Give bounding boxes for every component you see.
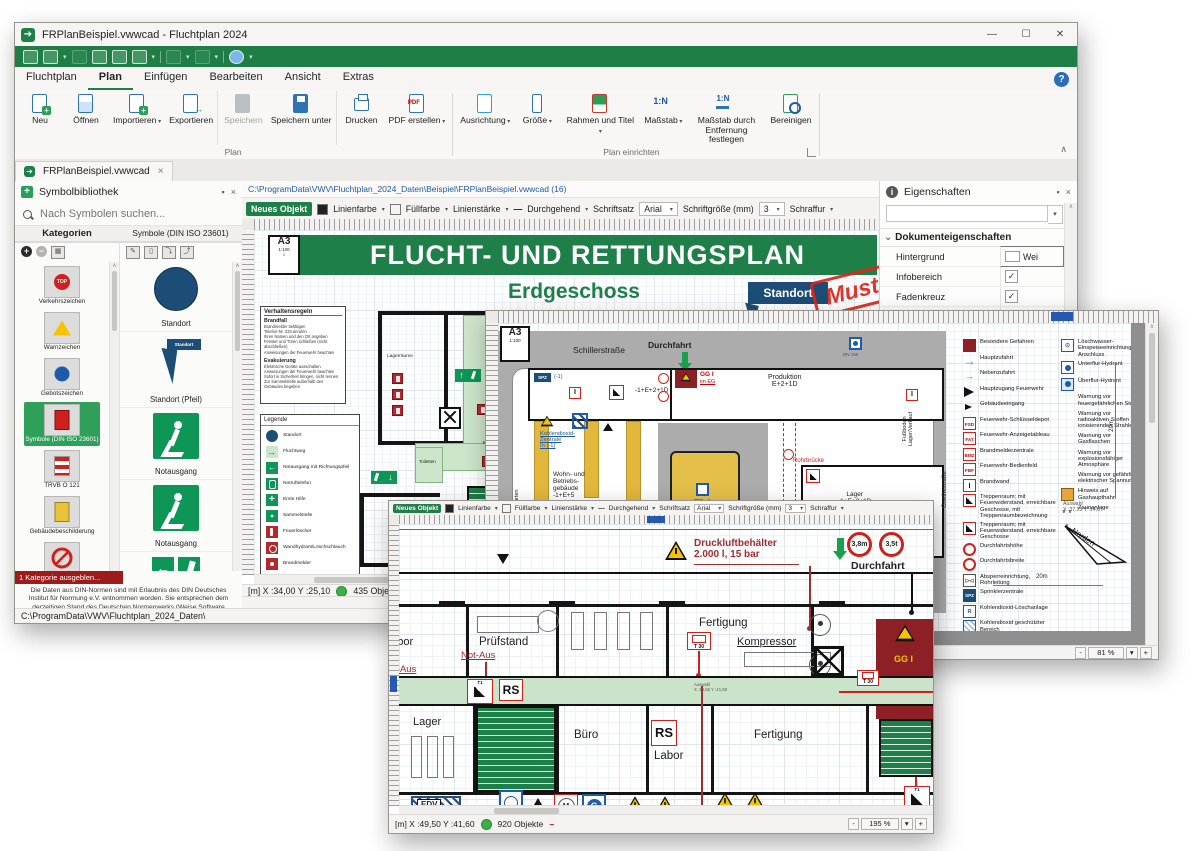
- symbol-label: Notausgang: [120, 539, 232, 548]
- symbol-toolbar: ✎ ▯ ⤵ ⤴: [120, 243, 242, 262]
- zoom-dropdown-icon[interactable]: ▾: [901, 818, 913, 830]
- entry-arrow: [837, 538, 844, 551]
- zoom-dropdown-icon[interactable]: ▾: [1126, 647, 1138, 659]
- document-tab[interactable]: ➔ FRPlanBeispiel.vwwcad ×: [15, 161, 173, 181]
- symbol-library-panel: + Symbolbibliothek ▪ × Kategorien Symbol…: [15, 181, 243, 609]
- ribbon-group-setup: Ausrichtung Größe Rahmen und Titel: [454, 90, 817, 159]
- status-ok-icon: [336, 586, 347, 597]
- fire-legend-icon: [1061, 472, 1074, 485]
- category-label: TRVB O 121: [24, 483, 100, 490]
- fire-legend-label: Hauptzufahrt: [980, 355, 1013, 361]
- ribbon-button[interactable]: Maßstab: [640, 91, 686, 145]
- symbol-search[interactable]: [15, 203, 242, 226]
- ribbon-button[interactable]: Speichern unter: [267, 91, 337, 145]
- object-count: 920 Objekte: [498, 819, 544, 829]
- fire-legend-item: BMZ Brandmelderzentrale: [963, 448, 1059, 461]
- symbol-item[interactable]: Standort (Pfeil): [120, 332, 232, 408]
- detail-canvas[interactable]: Druckluftbehälter 2.000 l, 15 bar 3,8m 3…: [399, 524, 933, 806]
- ribbon-button-label: Drucken: [346, 116, 378, 126]
- ribbon-button[interactable]: Bereinigen: [766, 91, 815, 145]
- app-icon: ➔: [21, 28, 35, 42]
- qat-open-icon[interactable]: [43, 50, 58, 64]
- category-label: Symbole (DIN ISO 23601): [24, 437, 100, 444]
- exit-sign: ↓: [371, 471, 397, 484]
- fire-legend-item: Hauptzufahrt: [963, 355, 1059, 368]
- category-item[interactable]: Verbotszeichen: [24, 540, 100, 571]
- plan-legend-label: Sammelstelle: [283, 513, 312, 518]
- ribbon-group-plan: Neu Öffnen Importieren: [15, 90, 451, 159]
- menu-tab[interactable]: Einfügen: [133, 67, 198, 90]
- plan-legend-item: Feuerlöscher: [266, 526, 354, 538]
- ribbon-button[interactable]: Maßstab durch Entfernung festlegen: [686, 91, 766, 145]
- fire-legend-icon: I: [963, 479, 976, 492]
- font-size-select[interactable]: 3▾: [785, 504, 806, 513]
- zoom-out-button[interactable]: -: [1075, 647, 1086, 659]
- fire-legend-item: Besondere Gefahren: [963, 339, 1059, 352]
- detail-statusbar: [m] X :49,50 Y :41,60 920 Objekte – - 19…: [389, 814, 933, 833]
- property-row[interactable]: Hintergrund Wei: [880, 247, 1064, 267]
- zoom-out-button[interactable]: -: [848, 818, 859, 830]
- ribbon-button-label: Exportieren: [169, 116, 213, 126]
- help-icon[interactable]: ?: [1054, 72, 1069, 87]
- fireplan-vscrollbar[interactable]: ∧: [1145, 323, 1158, 646]
- notaus-label: Not-Aus: [399, 664, 416, 675]
- import-symbol-icon[interactable]: ⤵: [162, 246, 176, 259]
- fire-legend-label: Durchfahrtsbreite: [980, 558, 1024, 564]
- plan-legend-label: Notausgang mit Richtungspfeil: [283, 465, 349, 470]
- ribbon-button-icon: [779, 93, 803, 115]
- ribbon-button-label: Größe: [523, 116, 552, 126]
- qat-redo-icon[interactable]: [195, 50, 210, 64]
- fire-legend-item: Warnung vor radioaktiven Stoffen oder io…: [1061, 411, 1131, 430]
- ribbon-button[interactable]: Öffnen: [63, 91, 109, 145]
- line-style-label[interactable]: Durchgehend: [527, 204, 580, 214]
- qat-print-icon[interactable]: [112, 50, 127, 64]
- plan-legend-item: Standort: [266, 430, 354, 442]
- fire-legend-icon: [1061, 433, 1074, 446]
- rules-box: Verhaltensregeln Brandfall Brandmelder b…: [260, 306, 346, 404]
- zoom-in-button[interactable]: +: [1140, 647, 1152, 659]
- plan-legend-label: Feuerlöscher: [283, 529, 312, 534]
- co2-label: Kohlendioxid- Zentrale In (-1): [540, 431, 575, 449]
- category-item[interactable]: Gebäudebeschilderung: [24, 494, 100, 538]
- fire-legend-label: Sprinklerzentrale: [980, 589, 1024, 595]
- fire-legend-icon: [1061, 378, 1074, 391]
- window-title: FRPlanBeispiel.vwwcad - Fluchtplan 2024: [42, 29, 247, 41]
- category-icon: [44, 358, 80, 390]
- detailplan-window: Neues Objekt Linienfarbe▾ Füllfarbe▾ Lin…: [388, 500, 934, 834]
- weight-sign: 3,5t: [879, 532, 904, 557]
- ribbon-button-icon: [714, 93, 738, 115]
- edit-symbol-icon[interactable]: ✎: [126, 246, 140, 259]
- north-arrow: Norden: [1063, 518, 1131, 573]
- warning-triangle: [541, 416, 554, 427]
- properties-icon: i: [886, 186, 898, 198]
- fire-legend-label: Nebenzufahrt: [980, 370, 1015, 376]
- fire-legend-item: Gebäudeeingang: [963, 401, 1059, 414]
- zoom-control[interactable]: - 195 % ▾ +: [848, 818, 927, 830]
- stairwell: [879, 719, 933, 777]
- font-size-label: Schriftgröße (mm): [728, 505, 781, 512]
- plan-legend-item: Sammelstelle: [266, 510, 354, 522]
- line-width-label[interactable]: Linienstärke: [453, 204, 500, 214]
- minimize-button[interactable]: —: [975, 23, 1009, 46]
- symbols-header: Symbole (DIN ISO 23601): [119, 226, 242, 242]
- ribbon-button[interactable]: Größe: [514, 91, 560, 145]
- fire-legend-label: Kohlendioxid-Löschanlage: [980, 605, 1048, 611]
- fire-legend-icon: FBF: [963, 463, 976, 476]
- category-icon: [44, 266, 80, 298]
- zoom-level: 81 %: [1088, 647, 1124, 659]
- fire-legend-label: Hauptzugang Feuerwehr: [980, 386, 1044, 392]
- export-symbol-icon[interactable]: ⤴: [180, 246, 194, 259]
- fire-legend-label: Brandmelderzentrale: [980, 448, 1034, 454]
- street-label: Schillerstraße: [573, 345, 625, 355]
- dimension-label-v: 20m: [1109, 420, 1115, 432]
- fire-legend-label: Feuerwehr-Bedienfeld: [980, 463, 1037, 469]
- fire-legend-icon: [963, 494, 976, 507]
- plan-legend-icon: [266, 558, 278, 570]
- plan-legend-item: Brandmelder: [266, 558, 354, 570]
- ribbon-button-icon: [525, 93, 549, 115]
- gg-label2: im EG: [700, 379, 715, 385]
- fire-legend-label: Warnung vor Gasflaschen: [1078, 433, 1131, 446]
- add-category-icon[interactable]: +: [21, 246, 32, 257]
- cursor-coords: [m] X :34,00 Y :25,10: [248, 586, 330, 596]
- plan-legend-item: Fluchtweg: [266, 446, 354, 458]
- hatch-label[interactable]: Schraffur: [790, 204, 826, 214]
- rules-line: Fenster und Türen schließen (nicht absch…: [264, 339, 342, 349]
- category-icon: [44, 450, 80, 482]
- fire-legend-right: Löschwasser-Einspeiseeinrichtung, B-Ansc…: [1061, 339, 1131, 518]
- fire-legend-label: Brandwand: [980, 479, 1009, 485]
- ribbon-button-icon: [405, 93, 429, 115]
- ribbon-button-label: Speichern unter: [271, 116, 332, 126]
- property-row[interactable]: Fadenkreuz: [880, 287, 1064, 307]
- fire-legend-icon: [963, 522, 976, 535]
- fire-legend-item: Kohlendioxid geschützter Bereich: [963, 620, 1059, 631]
- ribbon-button[interactable]: Importieren: [109, 91, 165, 145]
- new-object-button[interactable]: Neues Objekt: [393, 504, 441, 513]
- entrance-mark: [603, 423, 613, 431]
- ribbon-button[interactable]: Exportieren: [165, 91, 218, 145]
- fire-legend-label: Kohlendioxid geschützter Bereich: [980, 620, 1059, 631]
- category-label: Gebäudebeschilderung: [24, 529, 100, 536]
- fire-legend-label: Feuerwehr-Schlüsseldepot: [980, 417, 1049, 423]
- wohn-label: Wohn- und Betriebs- gebäude -1+E+5: [553, 471, 585, 499]
- ribbon-button-label: PDF erstellen: [389, 116, 446, 126]
- ribbon-button[interactable]: PDF erstellen: [385, 91, 450, 145]
- height-mark: [658, 373, 669, 384]
- pin-icon[interactable]: ▪: [1057, 187, 1060, 197]
- fire-legend-icon: [963, 386, 976, 399]
- ribbon-button-label: Öffnen: [73, 116, 99, 126]
- hydrant-label: DN 150: [843, 352, 858, 357]
- line-style-label[interactable]: Durchgehend: [609, 505, 649, 512]
- font-size-select[interactable]: 3▾: [759, 202, 785, 216]
- close-button[interactable]: ✕: [1043, 23, 1077, 46]
- fire-legend-item: Überflur-Hydrant: [1061, 378, 1131, 391]
- symbol-icon: [154, 267, 198, 311]
- plan-legend-icon: [266, 526, 278, 538]
- font-select[interactable]: Arial▾: [694, 504, 724, 513]
- menu-tab[interactable]: Bearbeiten: [198, 67, 273, 90]
- fire-legend-item: Unterflur-Hydrant: [1061, 361, 1131, 374]
- room-label: Fertigung: [699, 617, 748, 629]
- fire-legend-item: Treppenraum; mit Feuerwiderstand, erreic…: [963, 494, 1059, 519]
- category-item[interactable]: Warnzeichen: [24, 310, 100, 354]
- properties-header: i Eigenschaften ▪ ×: [880, 181, 1077, 203]
- fire-legend-icon: [1061, 361, 1074, 374]
- ribbon-button-icon: [473, 93, 497, 115]
- plan-legend-item: Wandhydrant/Löschschlauch: [266, 542, 354, 554]
- desktop: ➔ FRPlanBeispiel.vwwcad - Fluchtplan 202…: [0, 0, 1200, 851]
- spz-chip: SPZ: [534, 373, 551, 382]
- ribbon-button[interactable]: Rahmen und Titel: [560, 91, 640, 145]
- line-color-label[interactable]: Linienfarbe: [458, 505, 491, 512]
- ribbon-collapse-icon[interactable]: ∧: [1050, 144, 1077, 159]
- t1-stair-mark: T1: [904, 786, 930, 806]
- plan-legend-label: Notruftelefon: [283, 481, 311, 486]
- symbol-label: Standort (Pfeil): [120, 395, 232, 404]
- gg-label: GG I: [894, 654, 933, 664]
- line-color-swatch[interactable]: [317, 204, 328, 215]
- ribbon-button-label: Rahmen und Titel: [564, 116, 636, 135]
- selection-info: AuswahlX :49,55 Y :41,59: [694, 682, 727, 692]
- ribbon-button-label: Importieren: [113, 116, 161, 126]
- symbol-item[interactable]: Notausgang: [120, 480, 232, 552]
- symbol-item[interactable]: Standort: [120, 262, 232, 332]
- plan-legend-label: Standort: [283, 433, 302, 438]
- ribbon-button-icon: [231, 93, 255, 115]
- ribbon-button[interactable]: Neu: [17, 91, 63, 145]
- property-value[interactable]: [1000, 267, 1064, 286]
- doc-tab-close-icon[interactable]: ×: [158, 166, 164, 177]
- pin-icon[interactable]: ▪: [222, 187, 225, 197]
- zoom-level: 195 %: [861, 818, 899, 830]
- durchfahrt-label: Durchfahrt: [648, 340, 691, 350]
- ribbon-button[interactable]: Speichern: [220, 91, 267, 145]
- fill-color-label[interactable]: Füllfarbe: [515, 505, 541, 512]
- fire-legend-icon: [963, 574, 976, 587]
- save-category-icon[interactable]: ▦: [51, 246, 65, 259]
- druckluft-label: Druckluftbehälter 2.000 l, 15 bar: [694, 538, 777, 560]
- shelf: [411, 736, 422, 778]
- symbol-item[interactable]: Notausgang: [120, 552, 232, 571]
- search-icon: [23, 210, 32, 219]
- zoom-in-button[interactable]: +: [915, 818, 927, 830]
- category-item[interactable]: Symbole (DIN ISO 23601): [24, 402, 100, 446]
- rohrbruecke-label: Rohrbrücke: [793, 458, 824, 464]
- plan-legend-item: Notruftelefon: [266, 478, 354, 490]
- fire-legend-icon: [963, 401, 976, 414]
- property-value[interactable]: Wei: [1000, 246, 1064, 267]
- t1-stair-mark: T1: [467, 679, 493, 704]
- symbol-item[interactable]: Notausgang: [120, 408, 232, 480]
- plan-legend-label: Fluchtweg: [283, 449, 305, 454]
- plan-legend-label: Wandhydrant/Löschschlauch: [283, 545, 346, 550]
- fire-legend-item: FSD Feuerwehr-Schlüsseldepot: [963, 417, 1059, 430]
- fire-legend-label: Warnung vor explosionsfähiger Atmosphäre: [1078, 450, 1131, 469]
- property-label: Infobereich: [880, 272, 1000, 282]
- selector-dropdown-icon[interactable]: ▾: [1048, 205, 1063, 224]
- qat-export-icon[interactable]: [132, 50, 147, 64]
- ruler-cursor-chip: [1051, 312, 1073, 321]
- property-label: Hintergrund: [880, 252, 1000, 262]
- room-label: Prüfstand: [479, 636, 528, 648]
- room-label: Toiletten: [419, 459, 436, 464]
- rules-line: Zur Sammelstelle außerhalb des Gebäudes …: [264, 379, 342, 389]
- height-sign: 3,8m: [847, 532, 872, 557]
- aufstellflaeche: [584, 421, 599, 498]
- qat-saveas-icon[interactable]: [92, 50, 107, 64]
- ribbon-button[interactable]: Drucken: [339, 91, 385, 145]
- symbol-label: Standort: [120, 319, 232, 328]
- font-label: Schriftsatz: [593, 204, 634, 214]
- doc-tab-icon: ➔: [24, 166, 35, 177]
- fire-legend-label: Treppenraum; mit Feuerwiderstand, erreic…: [980, 494, 1059, 519]
- ribbon-button[interactable]: Ausrichtung: [456, 91, 514, 145]
- gg-box: [675, 370, 697, 388]
- delete-symbol-icon[interactable]: ▯: [144, 246, 158, 259]
- ribbon-group-label: Plan einrichten: [456, 146, 806, 159]
- font-select[interactable]: Arial▾: [639, 202, 678, 216]
- remove-category-icon[interactable]: −: [36, 246, 47, 257]
- notaus-label: Not-Aus: [461, 650, 495, 661]
- maximize-button[interactable]: ☐: [1009, 23, 1043, 46]
- entrance-mark: [497, 554, 509, 564]
- exit-sign: ↑: [455, 369, 481, 382]
- fire-legend-icon: [963, 370, 976, 383]
- ribbon-button-label: Bereinigen: [770, 116, 811, 126]
- t30-mark: T 30: [857, 670, 879, 686]
- fire-legend-icon: [963, 620, 976, 631]
- gg-label: GG I: [700, 371, 714, 378]
- symbol-library-header: + Symbolbibliothek ▪ ×: [15, 181, 242, 203]
- library-icon: +: [21, 186, 33, 198]
- panel-close-icon[interactable]: ×: [1066, 187, 1071, 197]
- hidden-category-badge: 1 Kategorie ausgeblen...: [15, 571, 123, 584]
- warning-triangle: [716, 790, 735, 806]
- new-object-button[interactable]: Neues Objekt: [246, 202, 312, 216]
- stairwell: [476, 706, 556, 792]
- ribbon: Neu Öffnen Importieren: [15, 90, 1077, 160]
- fire-legend-left: Besondere Gefahren Hauptzufahrt Nebenzuf…: [963, 339, 1059, 631]
- plan-legend-item: Erste Hilfe: [266, 494, 354, 506]
- line-width-label[interactable]: Linienstärke: [551, 505, 587, 512]
- dimension-label-h: 20m: [1036, 574, 1048, 580]
- object-toolbar: Neues Objekt Linienfarbe▾ Füllfarbe▾ Lin…: [242, 198, 879, 221]
- plan-title-banner: FLUCHT- UND RETTUNGSPLAN: [298, 235, 877, 275]
- qat-new-icon[interactable]: [23, 50, 38, 64]
- category-item[interactable]: Verkehrszeichen: [24, 264, 100, 308]
- menu-tab[interactable]: Extras: [332, 67, 385, 90]
- fill-color-label[interactable]: Füllfarbe: [406, 204, 440, 214]
- ribbon-button-icon: [179, 93, 203, 115]
- properties-section[interactable]: ⌄ Dokumenteigenschaften: [880, 228, 1077, 247]
- shelf: [443, 736, 454, 778]
- category-item[interactable]: TRVB O 121: [24, 448, 100, 492]
- qat-save-icon[interactable]: [72, 50, 87, 64]
- dialog-launcher-icon[interactable]: [807, 148, 816, 157]
- category-item[interactable]: Gebotszeichen: [24, 356, 100, 400]
- hatch-label[interactable]: Schraffur: [810, 505, 837, 512]
- menu-tab[interactable]: Plan: [88, 67, 133, 90]
- category-toolbar: + − ▦: [15, 243, 119, 262]
- fill-color-swatch[interactable]: [390, 204, 401, 215]
- plan-legend-icon: [266, 510, 278, 522]
- fire-legend-icon: [963, 355, 976, 368]
- fire-legend-item: Nebenzufahrt: [963, 370, 1059, 383]
- rs-mark: RS: [651, 720, 677, 746]
- produktion-label: Produktion E+2+1D: [768, 374, 801, 388]
- fire-legend-icon: FSD: [963, 417, 976, 430]
- ruler-cursor-chip: [390, 676, 397, 692]
- width-mark: [658, 391, 669, 402]
- warning-triangle: [746, 790, 765, 806]
- fire-legend-item: Löschwasser-Einspeiseeinrichtung, B-Ansc…: [1061, 339, 1131, 358]
- plan-subtitle: Erdgeschoss: [454, 280, 694, 304]
- menu-tab[interactable]: Ansicht: [274, 67, 332, 90]
- fire-legend-icon: [1061, 450, 1074, 463]
- fire-legend-item: Hauptzugang Feuerwehr: [963, 386, 1059, 399]
- panel-close-icon[interactable]: ×: [231, 187, 236, 197]
- durchfahrt-label: Durchfahrt: [851, 560, 905, 573]
- categories-header: Kategorien: [15, 226, 119, 242]
- line-color-label[interactable]: Linienfarbe: [333, 204, 377, 214]
- fill-color-swatch[interactable]: [502, 504, 511, 513]
- fire-legend-label: Besondere Gefahren: [980, 339, 1034, 345]
- symbols-scrollbar[interactable]: ∧: [232, 262, 242, 571]
- equipment: [571, 612, 584, 650]
- sprinkler-icon: [499, 790, 523, 806]
- object-selector[interactable]: [886, 205, 1048, 222]
- dimension-line-v: [1115, 363, 1116, 498]
- hydrant-icon: [849, 337, 862, 350]
- fire-legend-icon: FAT: [963, 432, 976, 445]
- ribbon-button-label: Ausrichtung: [460, 116, 510, 126]
- fire-legend-item: Warnung vor feuergefährlichen Stoffen: [1061, 394, 1131, 407]
- symbol-icon: [153, 413, 199, 459]
- symbol-label: Notausgang: [120, 467, 232, 476]
- fire-legend-item: Warnung vor Gasflaschen: [1061, 433, 1131, 446]
- property-row[interactable]: Infobereich: [880, 267, 1064, 287]
- fire-legend-icon: SPZ: [963, 589, 976, 602]
- ribbon-button-label: Speichern: [224, 116, 263, 126]
- qat-settings-icon[interactable]: [229, 50, 244, 64]
- stair-mark: [609, 385, 624, 400]
- ribbon-button-icon: [74, 93, 98, 115]
- pond-icon: [696, 483, 709, 496]
- categories-scrollbar[interactable]: ∧: [109, 262, 119, 571]
- property-value[interactable]: [1000, 287, 1064, 306]
- qat-undo-icon[interactable]: [166, 50, 181, 64]
- category-label: Warnzeichen: [24, 345, 100, 352]
- line-color-swatch[interactable]: [445, 504, 454, 513]
- fire-legend-icon: [1061, 339, 1074, 352]
- shaft: [814, 646, 844, 676]
- equipment: [477, 616, 539, 633]
- data-path: C:\ProgramData\VWV\Fluchtplan_2024_Daten…: [21, 611, 205, 621]
- titlebar[interactable]: ➔ FRPlanBeispiel.vwwcad - Fluchtplan 202…: [15, 23, 1077, 47]
- menu-tab[interactable]: Fluchtplan: [15, 67, 88, 90]
- plan-legend-box: Legende Standort Fluchtweg: [260, 414, 360, 575]
- ribbon-group-label: Plan: [17, 146, 449, 159]
- search-input[interactable]: [38, 207, 212, 221]
- plan-legend-icon: [266, 542, 278, 554]
- zoom-control[interactable]: - 81 % ▾ +: [1075, 647, 1152, 659]
- spz-level: (-1): [554, 374, 563, 380]
